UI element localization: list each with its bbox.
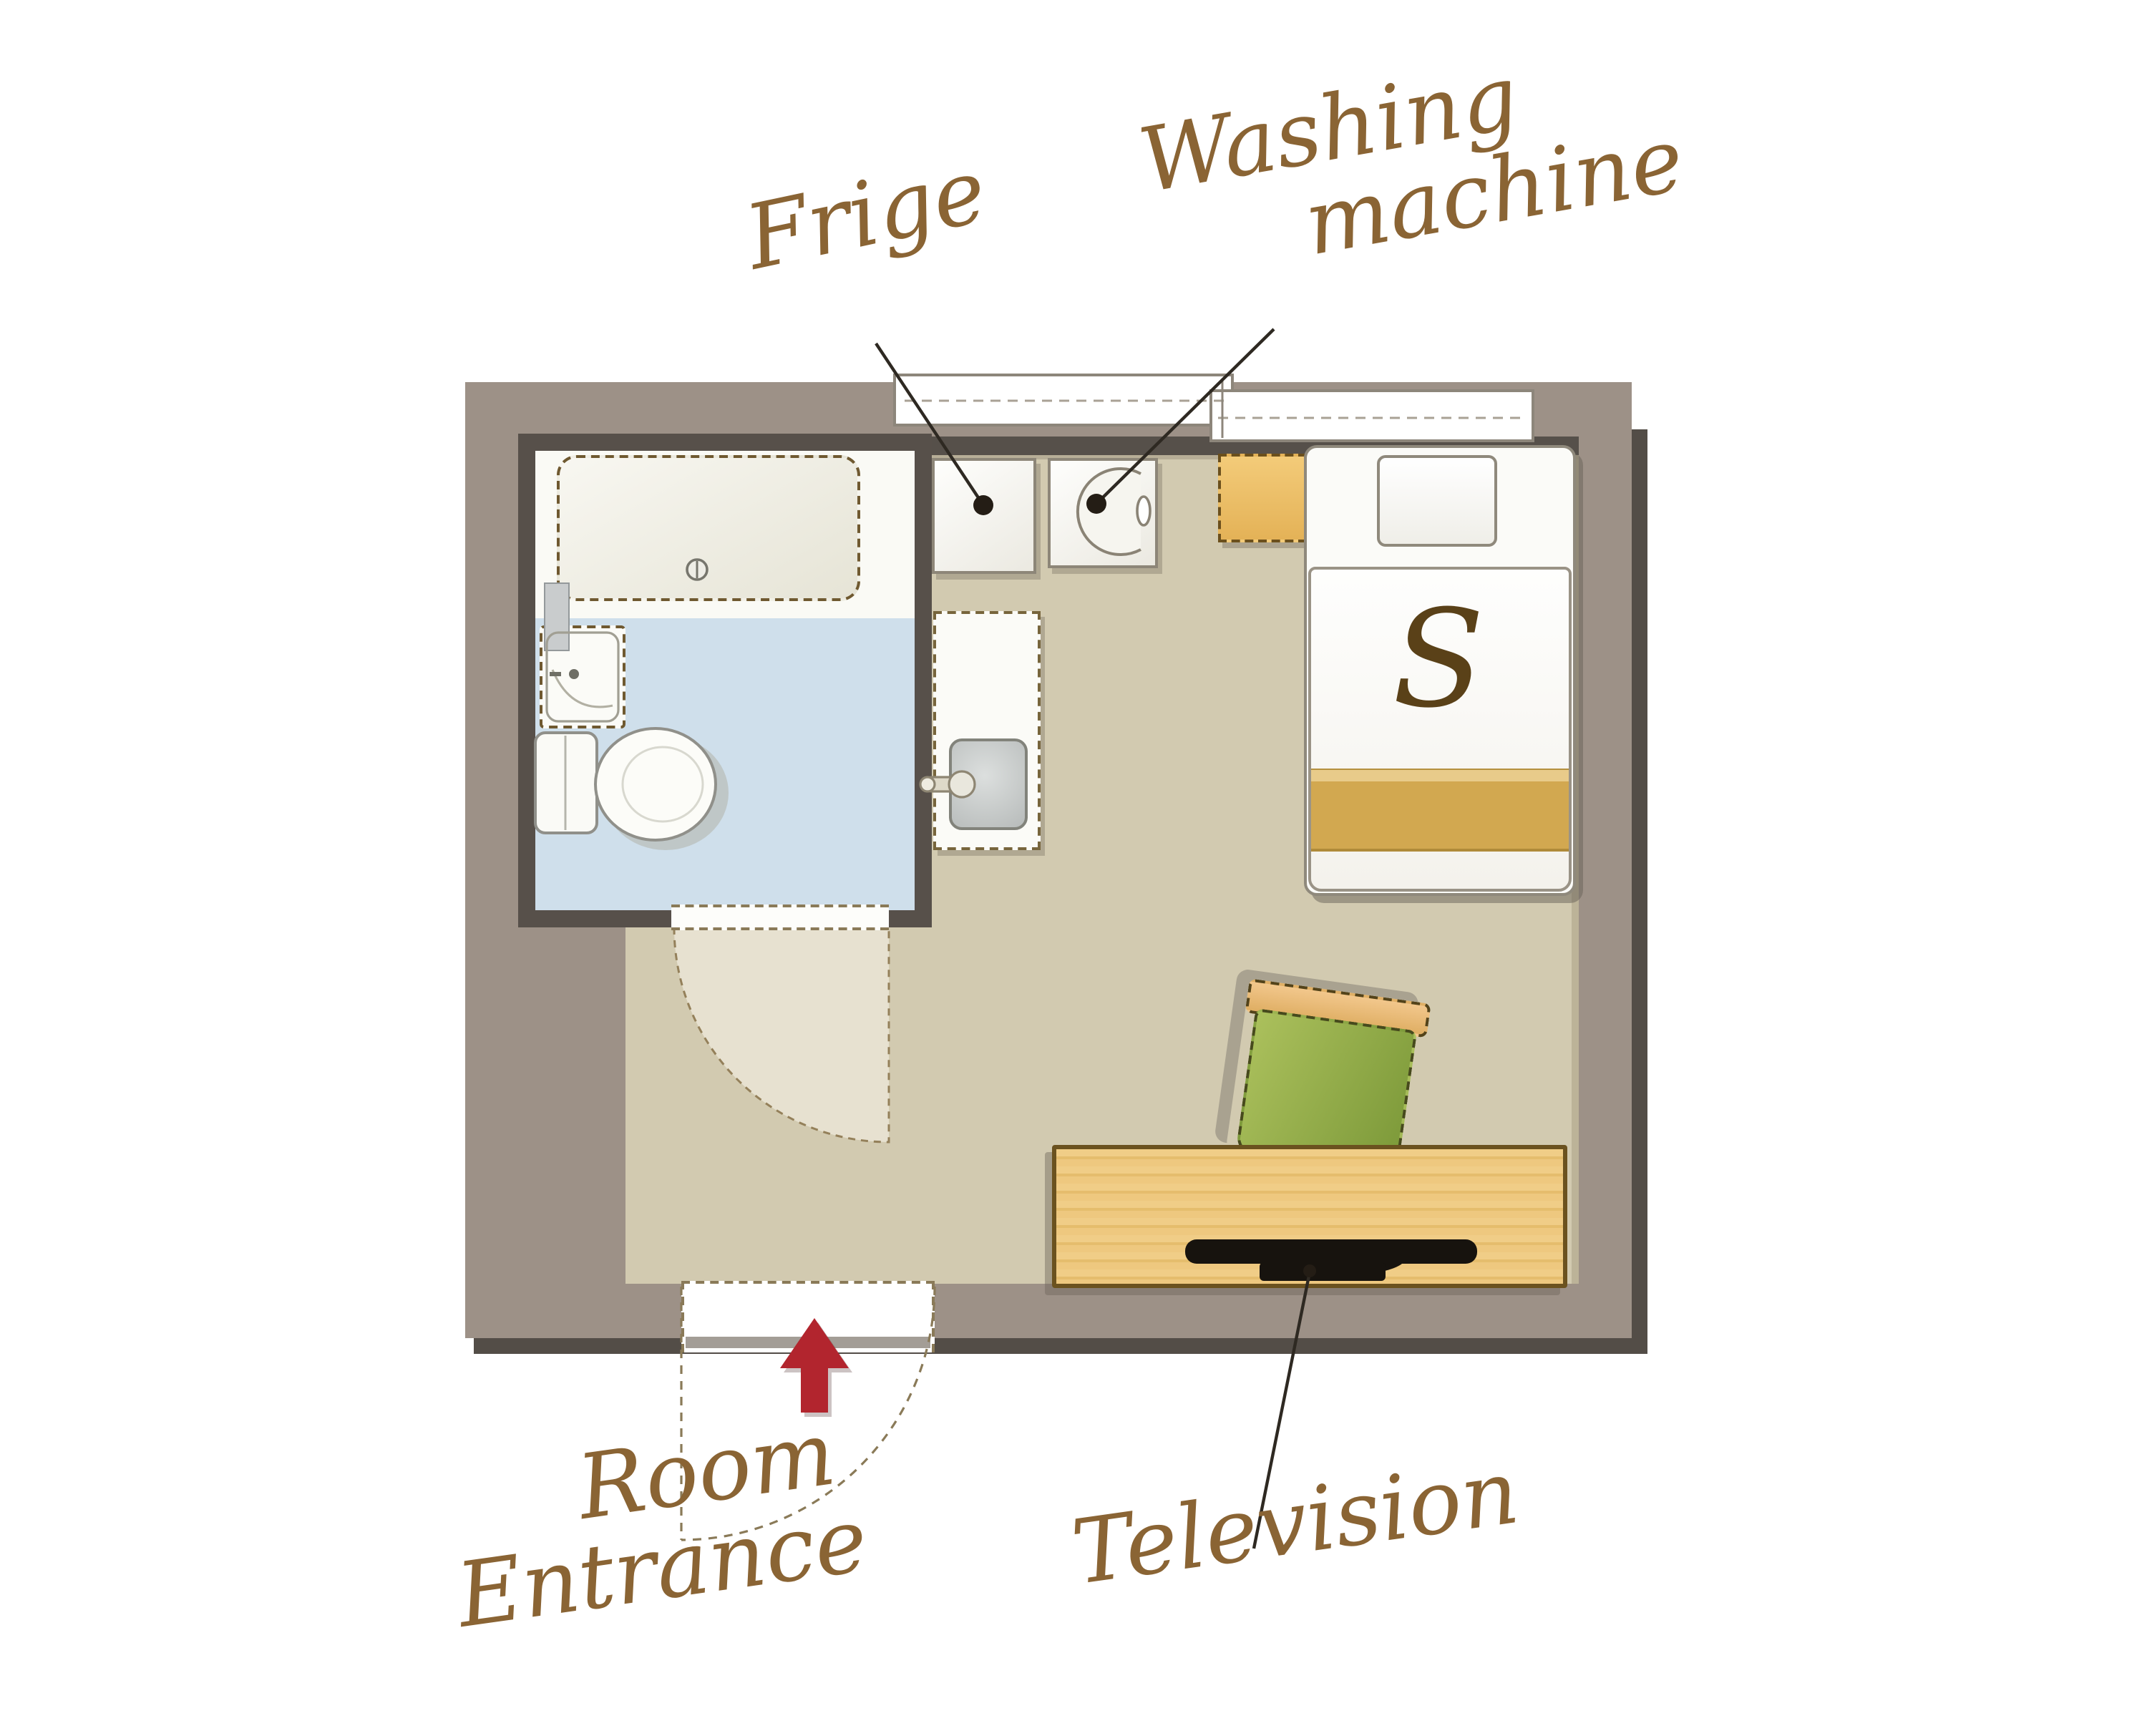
bathroom-door-opening [671,904,889,930]
label-washing-machine: Washing machine [1116,31,1655,298]
pillow [1377,455,1497,547]
bed-gold-band [1311,769,1569,852]
bed-single-letter: S [1360,575,1517,747]
washing-machine [1048,458,1158,568]
kitchen-sink-basin [949,738,1028,830]
bathroom-counter-column [544,582,570,651]
label-television: Television [1055,1445,1535,1600]
window-panel-right [1209,389,1534,442]
entrance-threshold [686,1337,930,1348]
bathtub [557,455,860,601]
label-fridge: Frige [696,136,1036,293]
entry-floor [625,927,932,1284]
label-fridge-text: Frige [737,137,995,290]
fridge [932,458,1036,574]
nightstand [1218,454,1307,542]
floor-plan-page: S [0,0,2147,1736]
wall-shadow-bottom [474,1338,1647,1354]
tv-desk [1052,1145,1567,1288]
label-room-entrance: Room Entrance [391,1390,983,1649]
wall-shadow-right [1632,429,1647,1354]
window-panel-left [893,374,1234,426]
label-television-text: Television [1066,1439,1524,1605]
